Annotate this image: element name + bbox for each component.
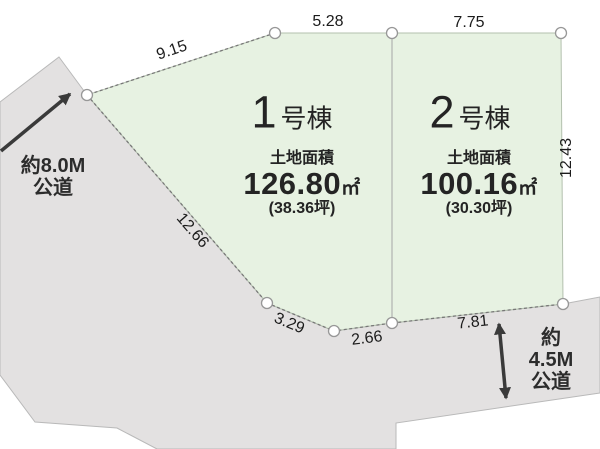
- boundary-point: [387, 318, 398, 329]
- lot-2-suffix: 号棟: [459, 106, 511, 132]
- lot-1-number: 1: [251, 90, 276, 135]
- lot-2-area-value: 100.16㎡: [420, 168, 537, 200]
- lot-1-suffix: 号棟: [281, 106, 333, 132]
- lot-2-area-number: 100.16: [420, 166, 518, 201]
- lot-2-area-tsubo: (30.30坪): [420, 200, 537, 218]
- plot-map-canvas: [0, 0, 600, 449]
- west-road-width: 約8.0M: [21, 155, 85, 177]
- boundary-point: [556, 28, 567, 39]
- lot-2-number: 2: [429, 90, 454, 135]
- lot-1-area-block: 土地面積 126.80㎡ (38.36坪): [243, 150, 360, 218]
- lot-2-title: 2 号棟: [429, 90, 510, 135]
- boundary-point: [558, 299, 569, 310]
- lot-2-area-block: 土地面積 100.16㎡ (30.30坪): [420, 150, 537, 218]
- lot-1-area-value: 126.80㎡: [243, 168, 360, 200]
- boundary-point: [270, 28, 281, 39]
- lot-2-area-unit: ㎡: [518, 178, 538, 199]
- lot-1-title: 1 号棟: [251, 90, 332, 135]
- dimension-label-lot1-top: 5.28: [312, 13, 343, 31]
- boundary-point: [82, 90, 93, 101]
- west-road-type: 公道: [21, 177, 85, 199]
- lot-1-area-number: 126.80: [243, 166, 341, 201]
- lot-1-area-tsubo: (38.36坪): [243, 200, 360, 218]
- dimension-label-lot2-right: 12.43: [558, 138, 576, 178]
- dimension-label-lot2-top: 7.75: [453, 14, 484, 32]
- dimension-label-lot1-bottom: 2.66: [350, 328, 383, 350]
- west-road-label: 約8.0M 公道: [21, 155, 85, 199]
- land-plot-diagram: 9.15 5.28 7.75 12.43 12.66 3.29 2.66 7.8…: [0, 0, 600, 449]
- dimension-label-lot2-bottom: 7.81: [457, 312, 490, 333]
- lot-1-area-unit: ㎡: [341, 178, 361, 199]
- boundary-point: [329, 326, 340, 337]
- south-road-type: 公道: [527, 371, 576, 393]
- south-road-width: 約4.5M: [527, 327, 576, 371]
- south-road-label: 約4.5M 公道: [527, 327, 576, 393]
- boundary-point: [262, 298, 273, 309]
- boundary-point: [387, 28, 398, 39]
